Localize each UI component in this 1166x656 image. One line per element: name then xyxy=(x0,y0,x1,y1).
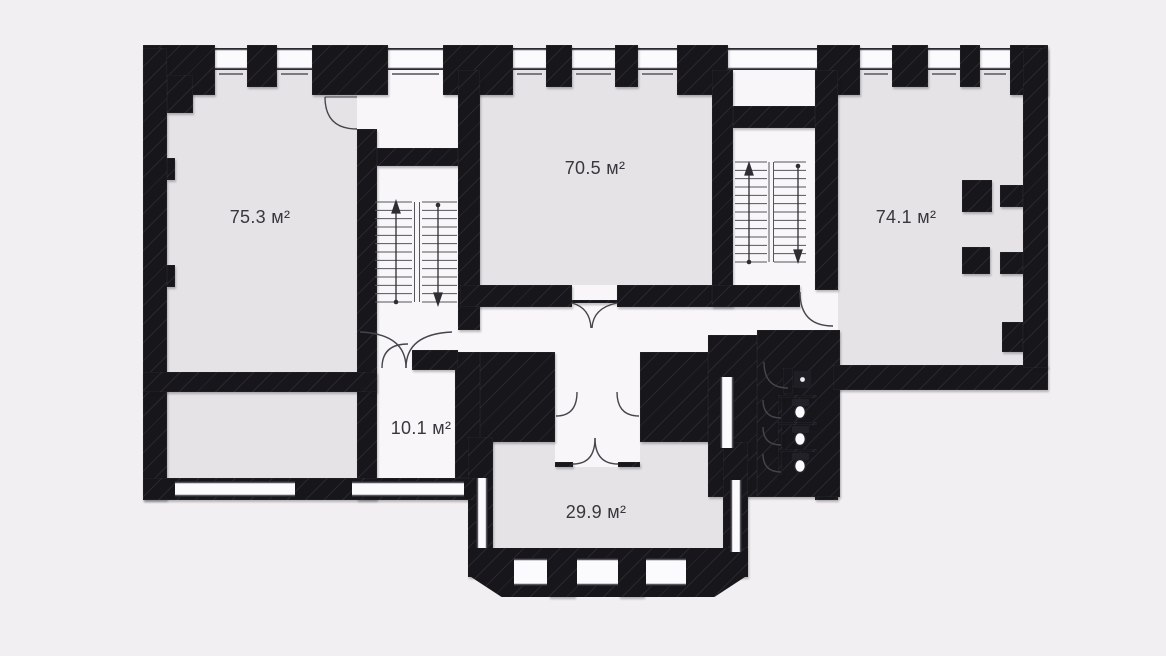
window xyxy=(730,480,742,552)
wall-segment xyxy=(167,75,193,113)
wall-segment xyxy=(778,449,817,452)
facade-pier xyxy=(247,45,277,87)
wall-segment xyxy=(412,350,458,370)
room-area-label: 75.3 м² xyxy=(200,207,320,228)
wall-segment xyxy=(712,70,733,307)
circulation-fill xyxy=(377,350,412,370)
room-area-label: 29.9 м² xyxy=(536,502,656,523)
wall-segment xyxy=(640,352,708,442)
wall-segment xyxy=(143,372,377,392)
wall-segment xyxy=(778,395,782,475)
wall-segment xyxy=(778,422,817,425)
wall-segment xyxy=(833,365,1048,390)
window xyxy=(646,558,686,586)
wall-segment xyxy=(167,265,175,287)
wall-segment xyxy=(1002,322,1023,352)
circulation-fill xyxy=(555,355,640,467)
wall-segment xyxy=(617,285,712,307)
window xyxy=(514,558,547,586)
window xyxy=(175,481,295,497)
wall-segment xyxy=(1000,185,1023,207)
facade-pier xyxy=(312,45,388,95)
room-fill xyxy=(167,390,360,478)
window xyxy=(352,481,464,497)
window xyxy=(476,478,488,548)
room-area-label: 70.5 м² xyxy=(535,158,655,179)
wall-segment xyxy=(733,106,815,128)
circulation-fill xyxy=(572,285,617,307)
wall-segment xyxy=(357,129,377,500)
window xyxy=(720,377,734,448)
facade-pier xyxy=(892,45,928,87)
wall-segment xyxy=(815,70,838,290)
wall-segment xyxy=(377,148,458,166)
wall-segment xyxy=(962,247,990,274)
wall-segment xyxy=(712,285,800,307)
wall-segment xyxy=(757,330,840,497)
facade-pier xyxy=(960,45,980,87)
wall-segment xyxy=(1023,48,1048,368)
facade-pier xyxy=(546,45,572,87)
wall-segment xyxy=(167,158,175,180)
wall-segment xyxy=(962,180,992,212)
room-fill xyxy=(480,70,712,307)
wall-segment xyxy=(778,395,817,398)
room-area-label: 74.1 м² xyxy=(846,207,966,228)
floor-plan: 75.3 м² 70.5 м² 74.1 м² 10.1 м² 29.9 м² xyxy=(0,0,1166,656)
wall-segment xyxy=(618,462,640,467)
wall-segment xyxy=(460,285,572,307)
wall-segment xyxy=(1000,252,1023,274)
wall-segment xyxy=(572,300,617,303)
facade-pier xyxy=(615,45,638,87)
wall-segment xyxy=(783,368,793,394)
circulation-fill xyxy=(357,95,377,129)
window xyxy=(577,558,618,586)
wall-segment xyxy=(480,352,555,442)
circulation-fill xyxy=(815,290,838,335)
room-area-label: 10.1 м² xyxy=(361,418,481,439)
wall-segment xyxy=(143,48,167,500)
wall-segment xyxy=(555,462,573,467)
